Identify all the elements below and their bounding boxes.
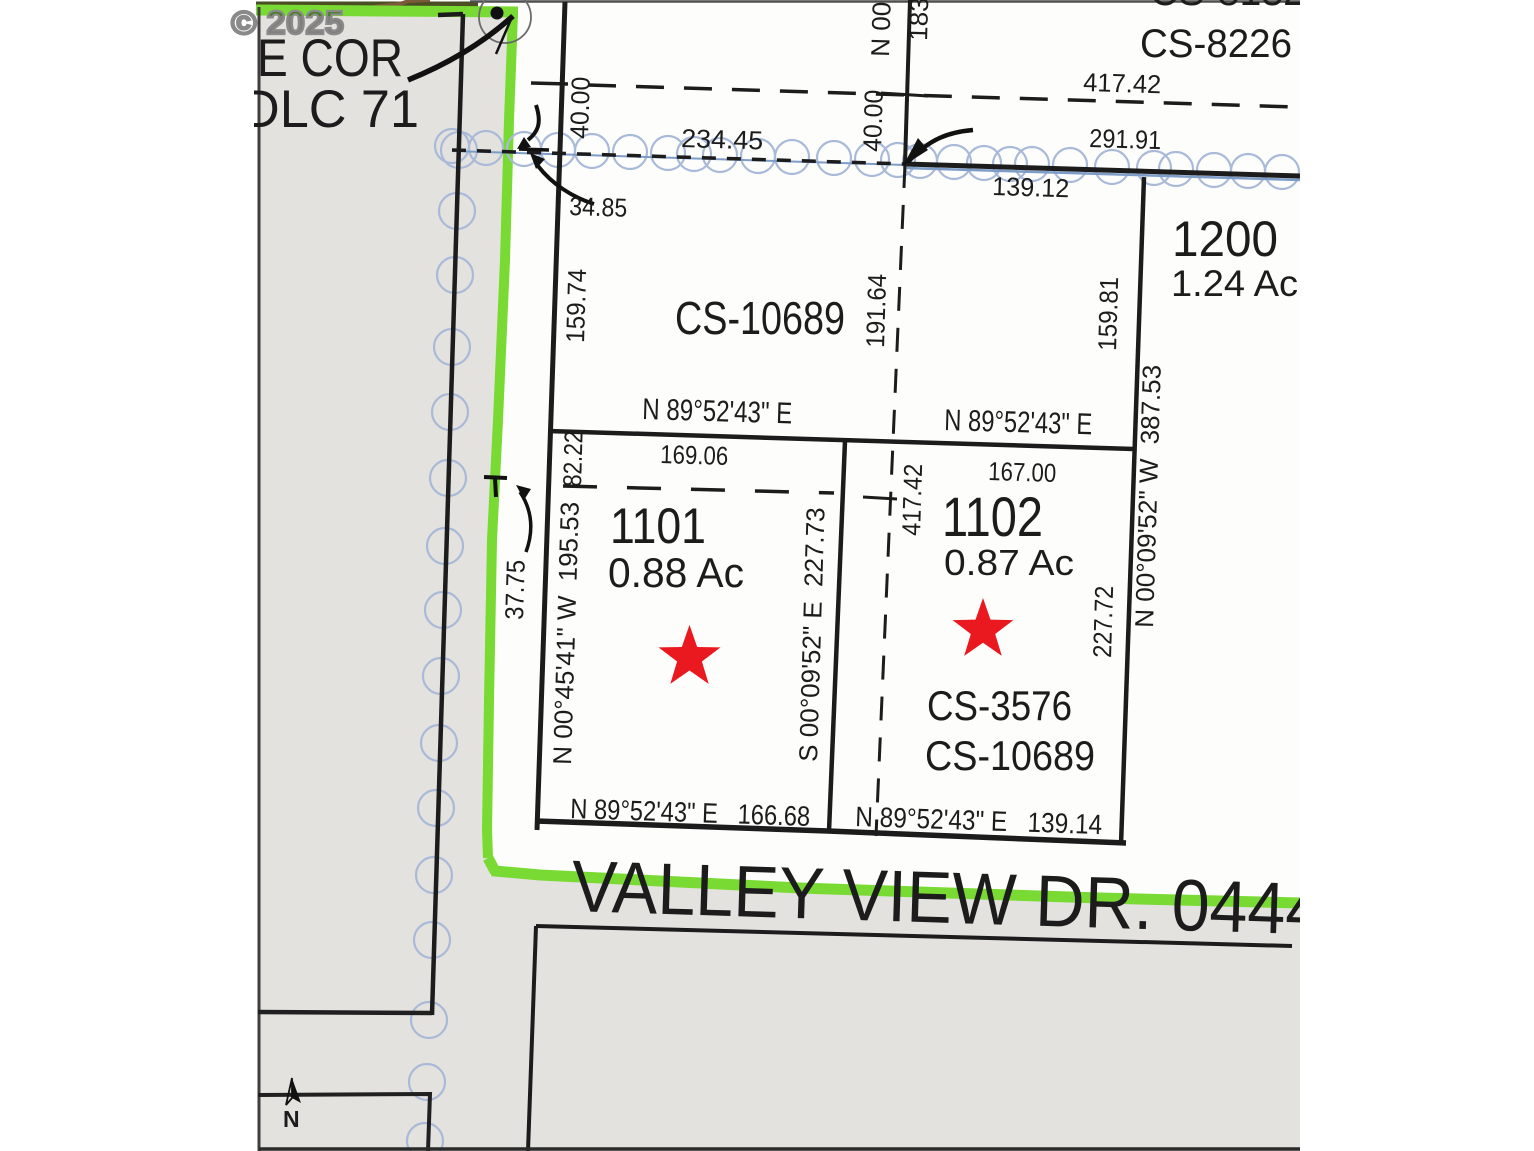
svg-text:CS-10689: CS-10689 (925, 732, 1095, 779)
svg-text:0.88 Ac: 0.88 Ac (608, 549, 744, 596)
svg-text:34.85: 34.85 (569, 191, 628, 223)
svg-text:159.81: 159.81 (1092, 276, 1124, 351)
svg-text:N: N (283, 1106, 300, 1132)
svg-text:82.22: 82.22 (557, 430, 589, 487)
svg-text:191.64: 191.64 (860, 273, 892, 348)
svg-text:1200: 1200 (1172, 211, 1278, 267)
svg-text:CS-10689: CS-10689 (675, 292, 845, 344)
svg-text:159.74: 159.74 (560, 268, 592, 343)
svg-text:417.42: 417.42 (1083, 67, 1162, 99)
svg-text:139.12: 139.12 (992, 171, 1070, 203)
svg-text:183.04: 183.04 (903, 0, 935, 41)
svg-text:291.91: 291.91 (1089, 123, 1162, 155)
svg-text:N 00°09'52" W: N 00°09'52" W (865, 0, 900, 57)
svg-text:CS-3576: CS-3576 (927, 682, 1072, 729)
svg-text:40.00: 40.00 (564, 76, 596, 139)
svg-text:N 89°52'43" E: N 89°52'43" E (944, 404, 1093, 441)
svg-text:1101: 1101 (610, 498, 706, 554)
svg-text:N 89°52'43" E: N 89°52'43" E (642, 393, 793, 430)
svg-text:1102: 1102 (942, 485, 1043, 548)
svg-text:169.06: 169.06 (660, 439, 729, 471)
svg-text:0.87 Ac: 0.87 Ac (944, 542, 1074, 583)
svg-text:DLC 71: DLC 71 (242, 80, 419, 139)
svg-text:167.00: 167.00 (988, 456, 1057, 488)
svg-text:CS-8226: CS-8226 (1140, 22, 1292, 66)
svg-text:234.45: 234.45 (681, 123, 764, 155)
svg-text:40.00: 40.00 (857, 89, 889, 152)
svg-text:1.24 Ac: 1.24 Ac (1171, 263, 1298, 304)
svg-text:CS-8132: CS-8132 (1150, 0, 1305, 14)
svg-text:417.42: 417.42 (896, 463, 928, 536)
svg-text:37.75: 37.75 (499, 559, 531, 620)
svg-text:227.72: 227.72 (1087, 585, 1119, 658)
